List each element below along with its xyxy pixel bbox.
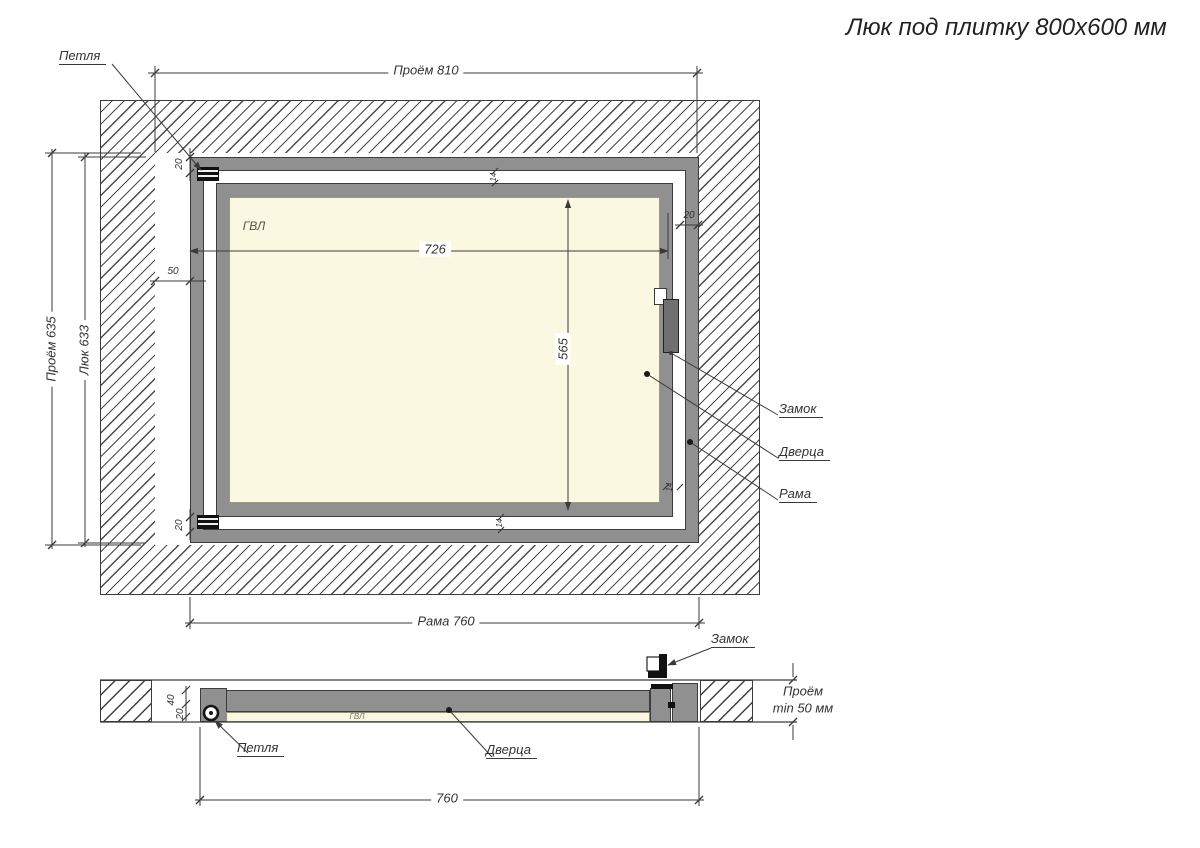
section-gvl-label: ГВЛ <box>350 713 365 721</box>
drawing-title: Люк под плитку 800х600 мм <box>846 14 1167 42</box>
section-wall-right <box>700 680 753 722</box>
section-wall-left <box>100 680 152 722</box>
dim-opening-height: Проём 635 <box>44 311 59 386</box>
dim-depth-40: 40 <box>167 694 177 705</box>
dim-depth-20: 20 <box>176 708 186 719</box>
dim-door-height-565: 565 <box>556 333 571 365</box>
label-door-section: Дверца <box>486 743 537 759</box>
dim-door-width-726: 726 <box>419 242 451 257</box>
section-door-edge-left <box>200 688 227 722</box>
dim-20-bottom-left: 20 <box>175 519 185 530</box>
label-lock-front: Замок <box>779 402 823 418</box>
lock-mark <box>663 299 679 353</box>
dim-20-top-left: 20 <box>175 158 185 169</box>
dim-gap-left-50: 50 <box>162 266 183 278</box>
section-door-band <box>226 690 650 712</box>
label-hinge-front: Петля <box>59 49 106 65</box>
dim-opening-depth-line2: min 50 мм <box>773 702 833 715</box>
dim-14-top: 14 <box>490 173 498 182</box>
label-hinge-section: Петля <box>237 741 284 757</box>
section-door-edge-right <box>650 688 671 722</box>
label-frame-front: Рама <box>779 487 817 503</box>
dim-14-bottom: 14 <box>496 519 504 528</box>
gvl-panel-label: ГВЛ <box>243 220 266 232</box>
hinge-mark-top <box>197 167 219 181</box>
hinge-mark-bottom <box>197 515 219 529</box>
dim-hatch-height: Люк 633 <box>77 320 92 380</box>
label-door-front: Дверца <box>779 445 830 461</box>
dim-opening-width: Проём 810 <box>388 63 463 78</box>
section-gvl-band <box>226 712 650 722</box>
dim-section-width-760: 760 <box>431 791 463 806</box>
dim-opening-depth-line1: Проём <box>783 685 823 698</box>
drawing-canvas: Люк под плитку 800х600 мм Проём 810 Проё… <box>0 0 1200 848</box>
dim-frame-width-760: Рама 760 <box>412 614 479 629</box>
dim-14-right: 14 <box>666 483 674 492</box>
section-frame-right <box>672 683 698 722</box>
label-lock-section: Замок <box>711 632 755 648</box>
dim-20-top-right: 20 <box>683 211 694 221</box>
